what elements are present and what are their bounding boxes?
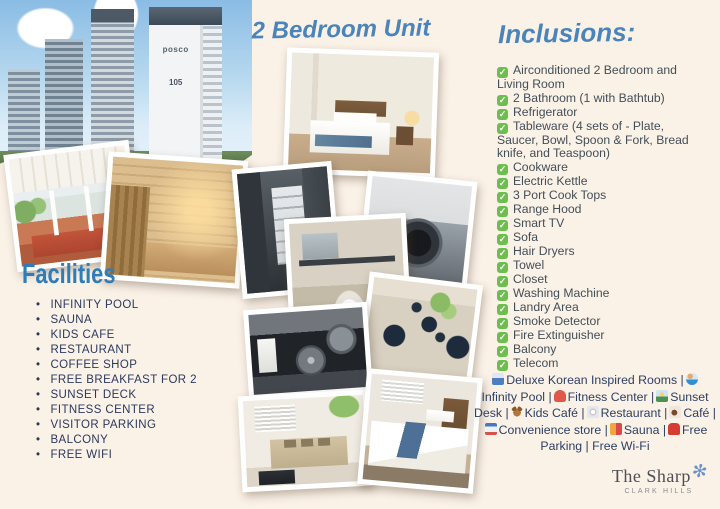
check-icon: ✓	[497, 220, 508, 231]
living-room-photo	[238, 390, 373, 493]
check-icon: ✓	[497, 262, 508, 273]
inclusion-item: ✓Smart TV	[497, 217, 702, 231]
swimmer-icon	[686, 373, 698, 385]
sauna-image	[105, 157, 243, 284]
inclusion-item: ✓Tableware (4 sets of - Plate, Saucer, B…	[497, 120, 702, 161]
inclusion-item: ✓Airconditioned 2 Bedroom and Living Roo…	[497, 64, 702, 92]
master-bedroom-image	[288, 53, 434, 174]
facility-item: INFINITY POOL	[36, 298, 197, 313]
check-icon: ✓	[497, 276, 508, 287]
kitchen-cooktop-image	[248, 307, 367, 395]
single-bedroom-photo	[357, 368, 483, 494]
brand-subtitle: CLARK HILLS	[612, 488, 706, 495]
inclusion-item: ✓Electric Kettle	[497, 175, 702, 189]
tower-roof-graphic	[149, 7, 222, 25]
facility-item: SAUNA	[36, 313, 197, 328]
tower-number-label: 105	[153, 78, 198, 87]
facility-item: RESTAURANT	[36, 343, 197, 358]
amenities-footer: Deluxe Korean Inspired Rooms |Infinity P…	[474, 372, 716, 455]
check-icon: ✓	[497, 290, 508, 301]
inclusion-item: ✓Towel	[497, 259, 702, 273]
apartment-tower-graphic	[45, 39, 83, 162]
posco-tower-graphic: posco 105	[149, 7, 222, 167]
check-icon: ✓	[497, 360, 508, 371]
unit-title: 2 Bedroom Unit	[246, 14, 436, 45]
check-icon: ✓	[497, 178, 508, 189]
inclusions-title: Inclusions:	[498, 17, 636, 50]
bed-icon	[492, 373, 504, 385]
teddy-bear-icon	[511, 406, 523, 418]
coffee-cup-icon	[669, 406, 681, 418]
check-icon: ✓	[497, 67, 508, 78]
sauna-photo	[100, 151, 249, 288]
facility-item: VISITOR PARKING	[36, 418, 197, 433]
check-icon: ✓	[497, 346, 508, 357]
check-icon: ✓	[497, 248, 508, 259]
facility-item: FREE BREAKFAST FOR 2	[36, 373, 197, 388]
facility-item: FITNESS CENTER	[36, 403, 197, 418]
tower-brand-label: posco	[153, 45, 198, 54]
inclusion-item: ✓Cookware	[497, 161, 702, 175]
sparkle-star-icon: ✻	[690, 460, 709, 484]
kitchen-cooktop-photo	[243, 302, 373, 400]
car-icon	[668, 423, 680, 435]
check-icon: ✓	[497, 206, 508, 217]
facility-item: COFFEE SHOP	[36, 358, 197, 373]
inclusion-item: ✓2 Bathroom (1 with Bathtub)	[497, 92, 702, 106]
inclusions-list: ✓Airconditioned 2 Bedroom and Living Roo…	[497, 64, 702, 371]
check-icon: ✓	[497, 109, 508, 120]
inclusion-item: ✓3 Port Cook Tops	[497, 189, 702, 203]
inclusion-item: ✓Refrigerator	[497, 106, 702, 120]
sauna-person-icon	[610, 423, 622, 435]
check-icon: ✓	[497, 318, 508, 329]
brand-name: The Sharp	[612, 466, 691, 486]
convenience-store-icon	[485, 423, 497, 435]
flyer: posco 105 Facilities INFINITY POOLSAUNAK…	[0, 0, 720, 509]
inclusion-item: ✓Washing Machine	[497, 287, 702, 301]
check-icon: ✓	[497, 234, 508, 245]
inclusion-item: ✓Hair Dryers	[497, 245, 702, 259]
facilities-title: Facilities	[22, 258, 115, 290]
facility-item: KIDS CAFE	[36, 328, 197, 343]
inclusion-item: ✓Sofa	[497, 231, 702, 245]
apartment-tower-graphic	[8, 69, 41, 161]
check-icon: ✓	[497, 95, 508, 106]
check-icon: ✓	[497, 332, 508, 343]
sunrise-mountain-icon	[656, 390, 668, 402]
inclusion-item: ✓Balcony	[497, 343, 702, 357]
check-icon: ✓	[497, 192, 508, 203]
weightlifter-icon	[554, 390, 566, 402]
inclusion-item: ✓Smoke Detector	[497, 315, 702, 329]
inclusion-item: ✓Range Hood	[497, 203, 702, 217]
living-room-image	[243, 395, 367, 487]
check-icon: ✓	[497, 123, 508, 134]
brand-logo: The Sharp✻ CLARK HILLS	[612, 466, 706, 495]
fork-plate-icon	[587, 406, 599, 418]
apartment-tower-graphic	[91, 9, 134, 160]
inclusion-item: ✓Fire Extinguisher	[497, 329, 702, 343]
single-bedroom-image	[363, 374, 478, 489]
master-bedroom-photo	[283, 47, 439, 178]
inclusion-item: ✓Closet	[497, 273, 702, 287]
check-icon: ✓	[497, 164, 508, 175]
facility-item: BALCONY	[36, 433, 197, 448]
facilities-list: INFINITY POOLSAUNAKIDS CAFERESTAURANTCOF…	[36, 298, 197, 463]
facility-item: SUNSET DECK	[36, 388, 197, 403]
check-icon: ✓	[497, 304, 508, 315]
inclusion-item: ✓Landry Area	[497, 301, 702, 315]
facility-item: FREE WIFI	[36, 448, 197, 463]
inclusion-item: ✓Telecom	[497, 357, 702, 371]
